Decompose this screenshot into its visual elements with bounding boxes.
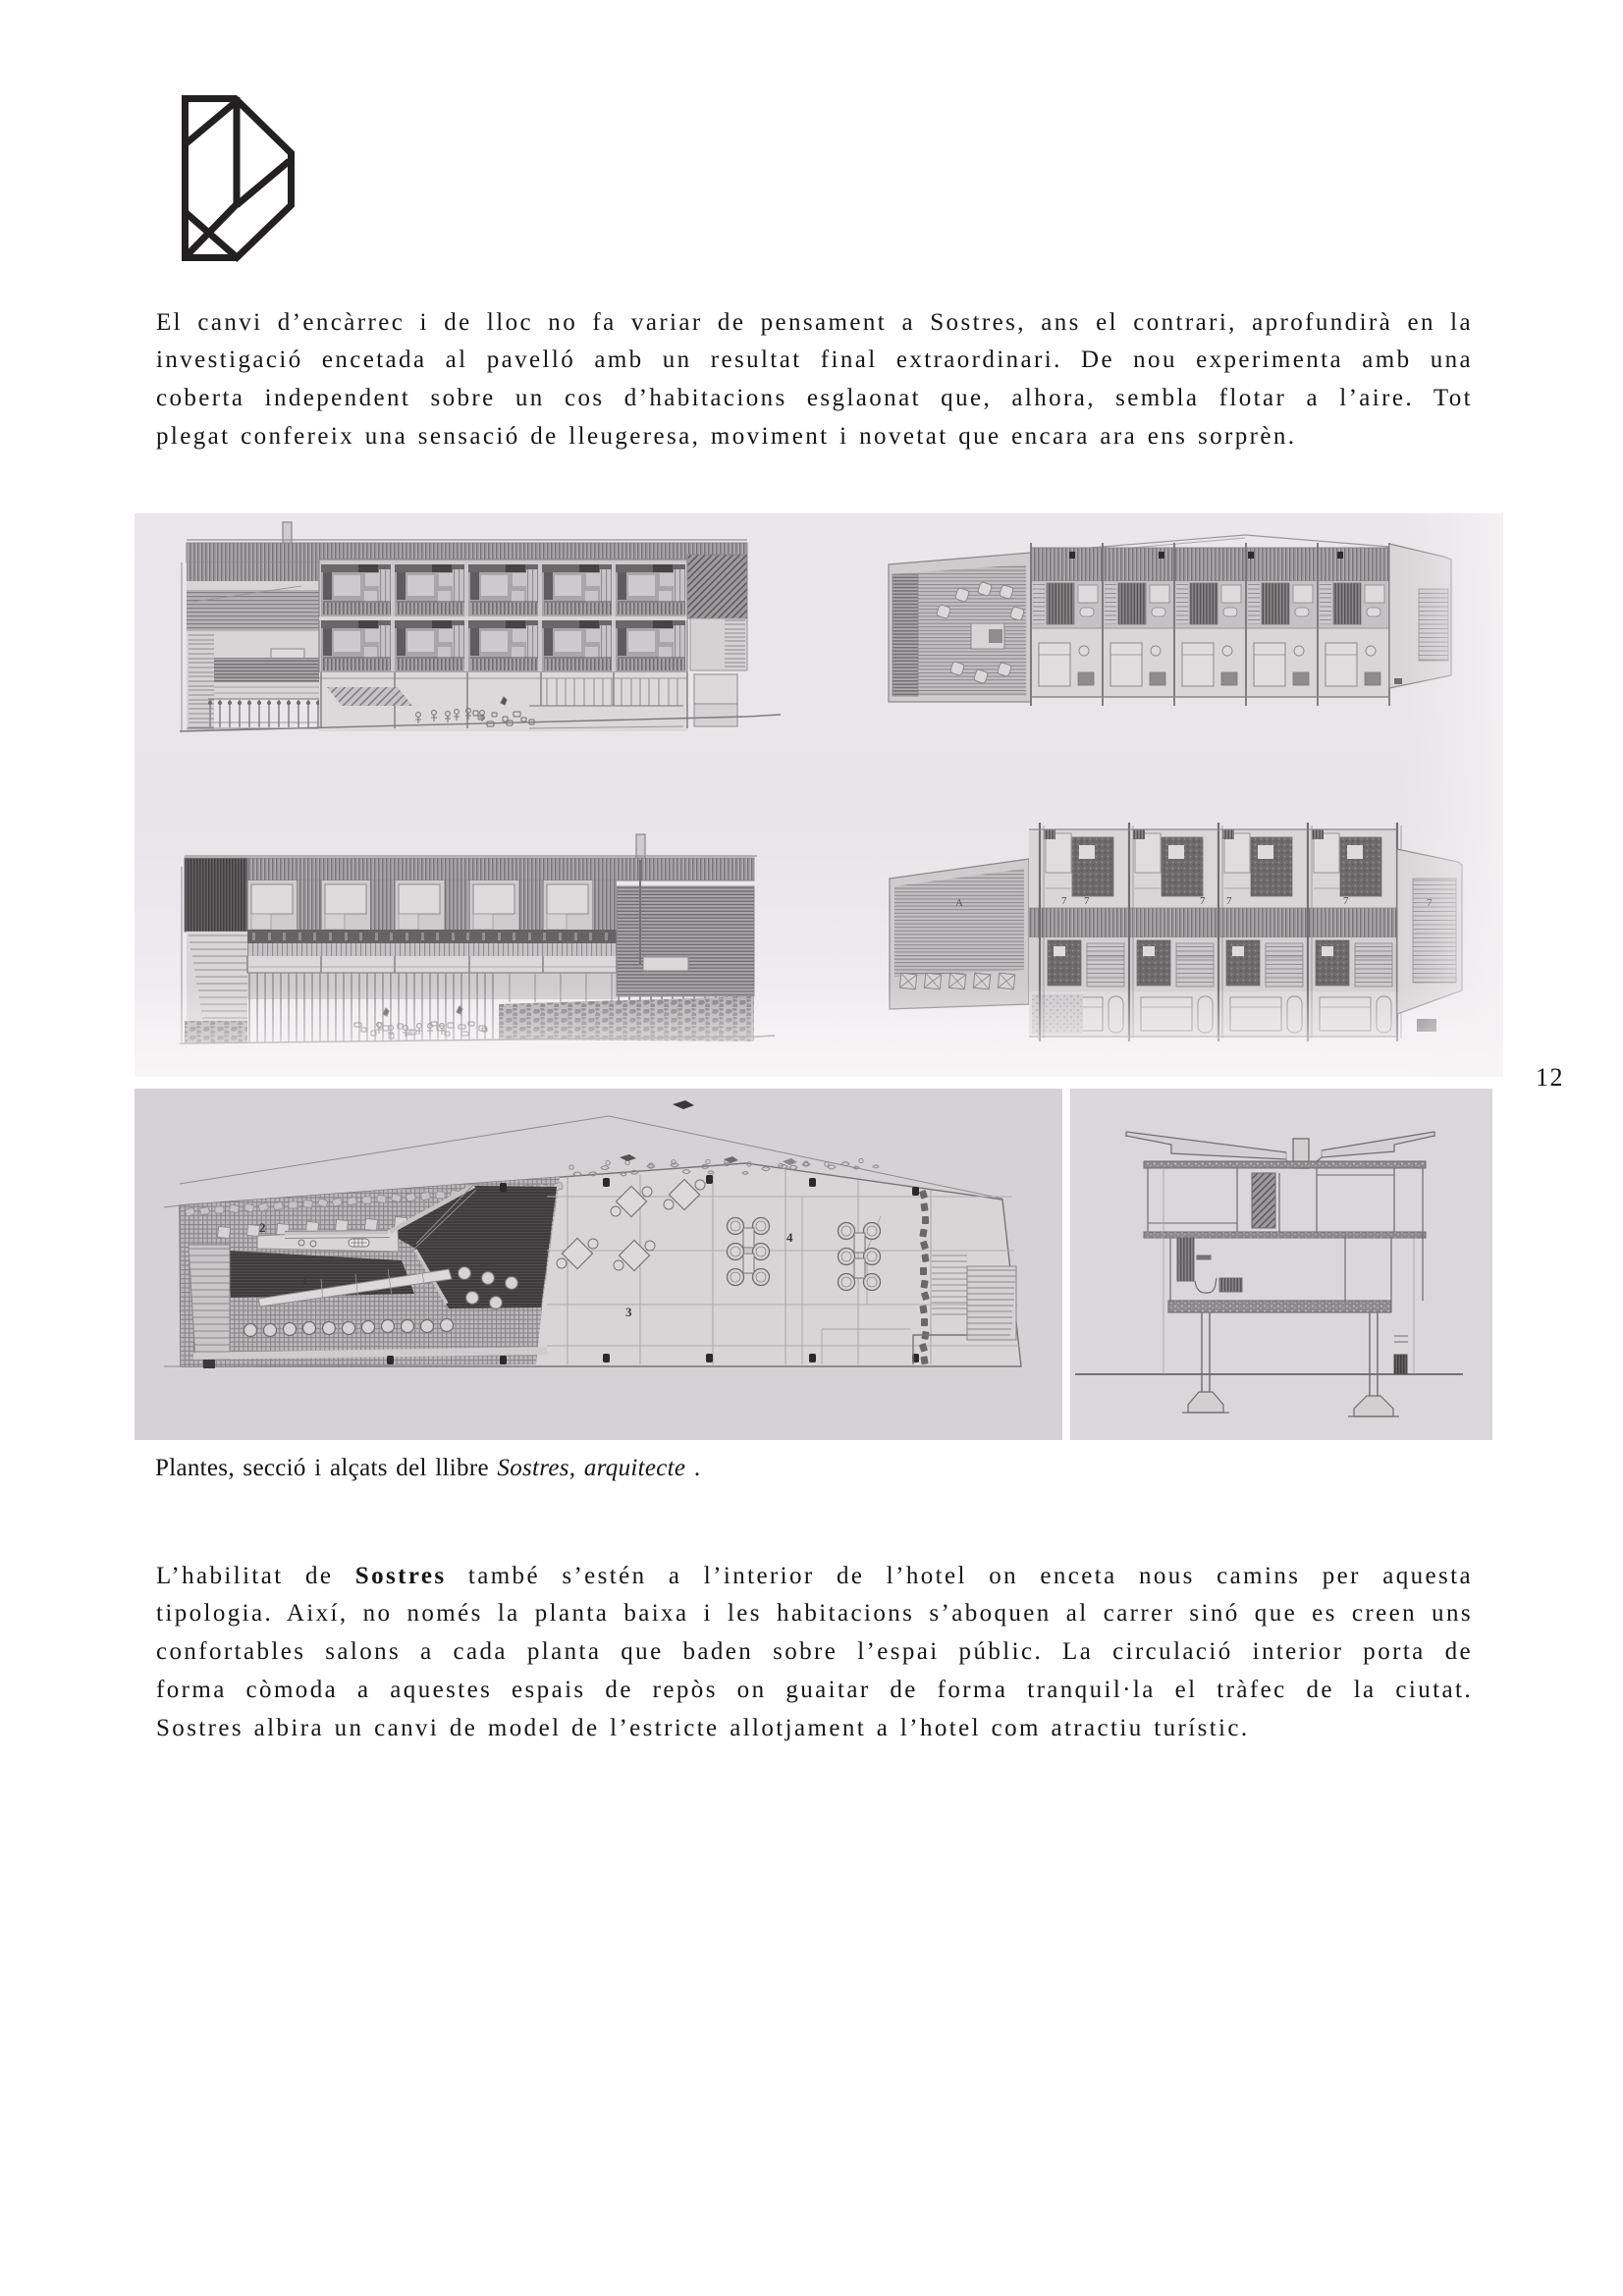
svg-text:7: 7 bbox=[1061, 895, 1067, 907]
svg-text:1: 1 bbox=[301, 1273, 308, 1288]
svg-text:7: 7 bbox=[1226, 895, 1232, 907]
svg-text:2: 2 bbox=[259, 1220, 266, 1235]
svg-text:7: 7 bbox=[1084, 895, 1090, 907]
svg-text:7: 7 bbox=[1343, 895, 1349, 907]
svg-text:3: 3 bbox=[625, 1305, 632, 1319]
svg-text:A: A bbox=[955, 897, 963, 909]
svg-text:7: 7 bbox=[1200, 895, 1206, 907]
svg-text:4: 4 bbox=[786, 1230, 793, 1245]
